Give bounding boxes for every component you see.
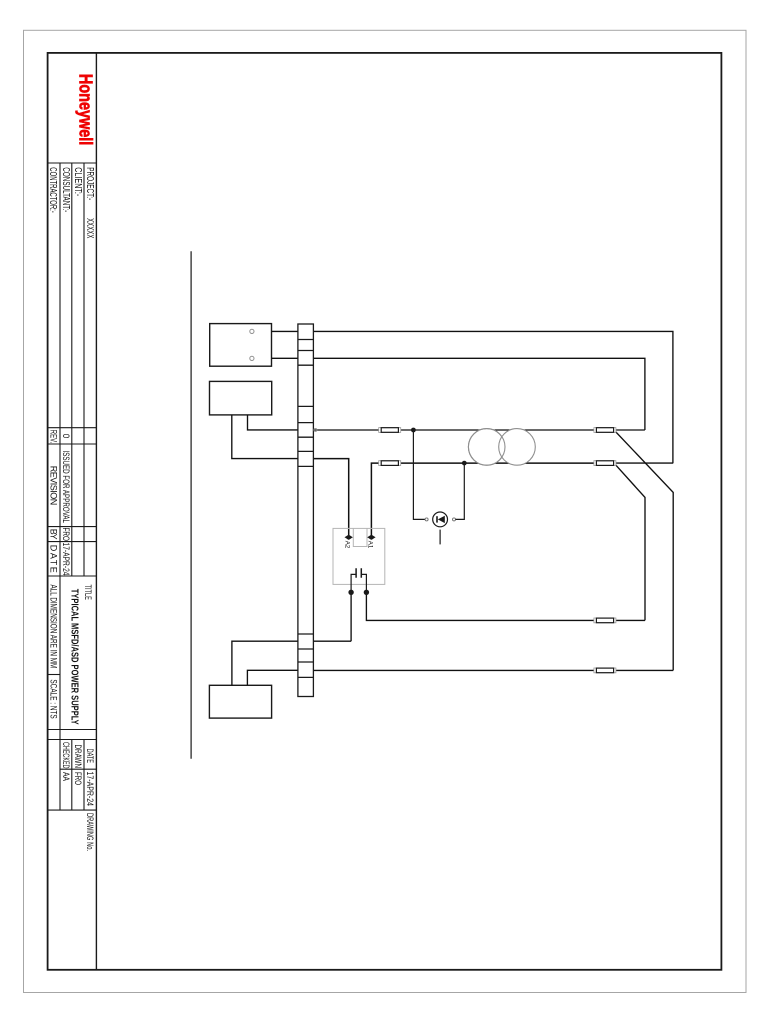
svg-text:Honeywell: Honeywell <box>76 74 96 145</box>
svg-text:TITLE: TITLE <box>83 585 93 600</box>
svg-text:A2: A2 <box>344 541 351 549</box>
svg-text:0: 0 <box>61 434 71 439</box>
svg-text:17-APR-24: 17-APR-24 <box>85 772 95 807</box>
svg-text:FRO: FRO <box>61 528 71 542</box>
svg-text:17-APR-24: 17-APR-24 <box>61 543 71 576</box>
svg-text:FRO: FRO <box>73 772 83 785</box>
svg-text:CONSULTANT:-: CONSULTANT:- <box>60 167 71 212</box>
svg-text:TYPICAL MSFD/ASD POWER SUPPLY: TYPICAL MSFD/ASD POWER SUPPLY <box>69 589 80 725</box>
svg-text:DRAWING No.: DRAWING No. <box>85 813 95 851</box>
svg-text:ALL DIMENSION ARE IN MM: ALL DIMENSION ARE IN MM <box>48 585 58 669</box>
svg-text:DATE: DATE <box>49 545 59 573</box>
svg-text:DRAWN: DRAWN <box>73 745 83 769</box>
svg-text:CONTRACTOR:-: CONTRACTOR:- <box>47 167 58 213</box>
svg-text:AA: AA <box>61 772 71 781</box>
svg-text:SCALE : NTS: SCALE : NTS <box>48 679 58 718</box>
svg-text:A1: A1 <box>366 541 373 549</box>
svg-text:REVISION: REVISION <box>49 466 59 506</box>
svg-text:REV.: REV. <box>49 430 59 444</box>
svg-text:CLIENT:-: CLIENT:- <box>72 167 83 196</box>
svg-text:ISSUED FOR APPROVAL: ISSUED FOR APPROVAL <box>61 451 71 524</box>
svg-text:BY: BY <box>49 529 59 540</box>
svg-text:PROJECT:-: PROJECT:- <box>84 167 95 200</box>
svg-text:XXXXX: XXXXX <box>84 218 95 238</box>
svg-text:CHECKED: CHECKED <box>61 742 71 769</box>
svg-text:DATE: DATE <box>85 749 95 763</box>
